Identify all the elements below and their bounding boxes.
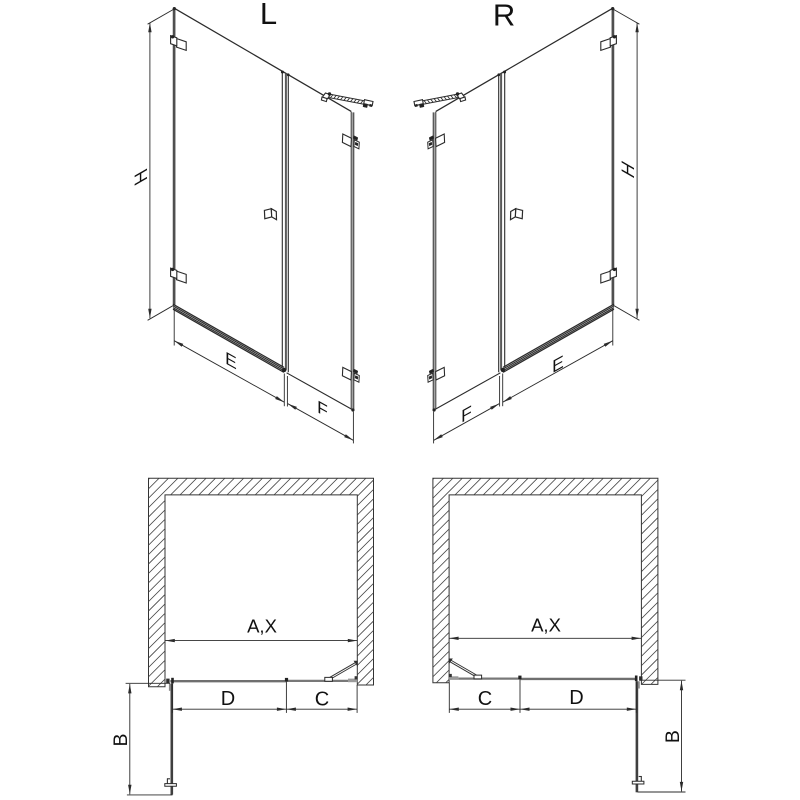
svg-text:L: L <box>260 0 277 31</box>
svg-text:R: R <box>493 0 515 33</box>
svg-text:C: C <box>315 689 329 711</box>
svg-text:A,X: A,X <box>531 615 561 636</box>
svg-text:D: D <box>221 688 235 710</box>
svg-text:B: B <box>662 730 684 743</box>
svg-text:A,X: A,X <box>247 616 277 637</box>
svg-text:C: C <box>478 688 492 710</box>
svg-text:D: D <box>569 687 583 709</box>
svg-text:B: B <box>110 733 132 746</box>
